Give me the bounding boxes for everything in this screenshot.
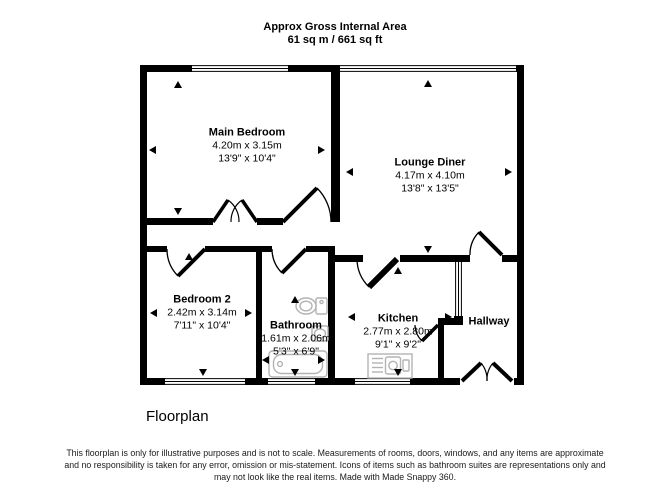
wall-right — [517, 65, 524, 385]
room-dim-imperial: 5'3" x 6'9" — [261, 346, 330, 359]
toilet-icon — [296, 298, 327, 314]
room-name: Lounge Diner — [395, 157, 466, 170]
dim-arrow-right — [318, 146, 325, 154]
room-label-main-bedroom: Main Bedroom 4.20m x 3.15m 13'9" x 10'4" — [209, 127, 285, 166]
window-bathroom — [268, 378, 315, 385]
dim-arrow-up — [185, 253, 193, 260]
dim-arrow-up — [291, 296, 299, 303]
door-swing-bedroom2 — [167, 249, 205, 276]
wall-mainbed-lounge — [331, 72, 340, 222]
door-swing-kitchen — [357, 259, 397, 287]
dim-arrow-left — [346, 168, 353, 176]
dim-arrow-left — [149, 146, 156, 154]
dim-arrow-up — [394, 267, 402, 274]
wall-bed2-top-b — [205, 246, 256, 252]
room-name: Hallway — [469, 316, 510, 329]
room-name: Bedroom 2 — [167, 294, 236, 307]
room-label-lounge-diner: Lounge Diner 4.17m x 4.10m 13'8" x 13'5" — [395, 157, 466, 196]
room-label-hallway: Hallway — [469, 316, 510, 329]
kitchen-sink-icon — [368, 354, 412, 378]
door-swing-closet-left — [213, 200, 239, 222]
wall-kitchen-hall-v — [438, 325, 444, 378]
wall-mainbed-bottom-a — [147, 218, 213, 225]
dim-arrow-left — [150, 309, 157, 317]
wall-kitchen-top — [335, 255, 363, 262]
room-name: Main Bedroom — [209, 127, 285, 140]
room-dim-metric: 2.42m x 3.14m — [167, 307, 236, 320]
room-dim-metric: 4.17m x 4.10m — [395, 170, 466, 183]
windows — [165, 65, 516, 385]
wall-lounge-bottom-b — [502, 255, 517, 262]
room-dim-imperial: 13'8" x 13'5" — [395, 183, 466, 196]
room-label-bedroom-2: Bedroom 2 2.42m x 3.14m 7'11" x 10'4" — [167, 294, 236, 333]
disclaimer-line-3: may not look like the real items. Made w… — [0, 471, 670, 483]
room-dim-metric: 1.61m x 2.06m — [261, 333, 330, 346]
floorplan-drawing — [0, 0, 670, 498]
window-lounge — [340, 65, 516, 72]
dim-arrow-up — [424, 80, 432, 87]
window-kitchen-hall-partition — [455, 262, 462, 316]
room-dim-imperial: 13'9" x 10'4" — [209, 153, 285, 166]
dim-arrow-down — [199, 369, 207, 376]
floorplan-caption: Floorplan — [146, 408, 209, 425]
wall-lounge-bottom-a — [400, 255, 470, 262]
door-swing-bathroom — [272, 249, 306, 273]
room-dim-metric: 4.20m x 3.15m — [209, 140, 285, 153]
room-name: Kitchen — [363, 313, 432, 326]
dim-arrow-right — [245, 309, 252, 317]
wall-bed2-top-a — [147, 246, 167, 252]
wall-left — [140, 65, 147, 385]
wall-kitchen-hall-h — [438, 318, 463, 325]
window-kitchen — [355, 378, 410, 385]
window-bedroom2 — [165, 378, 245, 385]
room-dim-imperial: 7'11" x 10'4" — [167, 320, 236, 333]
room-dim-imperial: 9'1" x 9'2" — [363, 339, 432, 352]
dim-arrow-left — [348, 313, 355, 321]
room-dim-metric: 2.77m x 2.80m — [363, 326, 432, 339]
room-label-kitchen: Kitchen 2.77m x 2.80m 9'1" x 9'2" — [363, 313, 432, 352]
dim-arrow-down — [174, 208, 182, 215]
disclaimer-text: This floorplan is only for illustrative … — [0, 447, 670, 483]
wall-mainbed-bottom-b — [257, 218, 283, 225]
disclaimer-line-2: and no responsibility is taken for any e… — [0, 459, 670, 471]
dim-arrow-up — [174, 81, 182, 88]
room-label-bathroom: Bathroom 1.61m x 2.06m 5'3" x 6'9" — [261, 320, 330, 359]
door-swing-lounge-hall — [470, 232, 502, 255]
door-swing-main-bedroom — [283, 188, 331, 222]
wall-bathroom-top-b — [306, 246, 328, 252]
door-swing-closet-right — [231, 200, 257, 222]
kitchen-fixtures — [368, 354, 412, 378]
window-main-bedroom — [192, 65, 288, 72]
dim-arrow-down — [424, 246, 432, 253]
disclaimer-line-1: This floorplan is only for illustrative … — [0, 447, 670, 459]
dim-arrow-right — [505, 168, 512, 176]
room-name: Bathroom — [261, 320, 330, 333]
wall-bathroom-top-a — [262, 246, 272, 252]
